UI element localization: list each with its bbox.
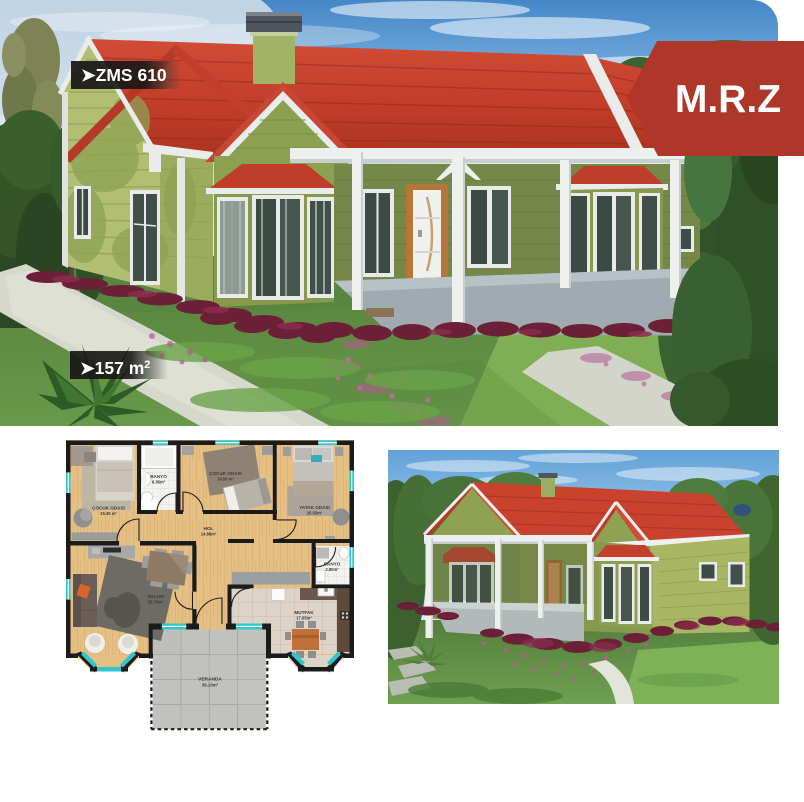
- svg-text:BANYO: BANYO: [324, 562, 341, 567]
- svg-text:ÇOCUK ODASI: ÇOCUK ODASI: [209, 471, 242, 476]
- svg-text:25.55m²: 25.55m²: [307, 511, 323, 516]
- svg-text:15.35 m²: 15.35 m²: [100, 511, 117, 516]
- svg-text:YATAK ODASI: YATAK ODASI: [299, 505, 330, 510]
- svg-text:MUTFAK: MUTFAK: [294, 610, 314, 615]
- svg-text:HOL: HOL: [204, 526, 214, 531]
- svg-text:17.65m²: 17.65m²: [296, 616, 312, 621]
- svg-text:6.36m²: 6.36m²: [152, 480, 166, 485]
- svg-text:ÇOCUK ODASI: ÇOCUK ODASI: [92, 506, 125, 511]
- svg-text:14.88m²: 14.88m²: [201, 532, 217, 537]
- svg-text:14.50 m²: 14.50 m²: [217, 477, 234, 482]
- svg-text:M.R.Z: M.R.Z: [675, 78, 781, 121]
- svg-text:SALON: SALON: [147, 594, 164, 599]
- svg-text:3.80m²: 3.80m²: [325, 567, 339, 572]
- svg-text:39.10m²: 39.10m²: [202, 683, 219, 688]
- svg-text:28.75m²: 28.75m²: [148, 600, 164, 605]
- svg-text:BANYO: BANYO: [150, 474, 167, 479]
